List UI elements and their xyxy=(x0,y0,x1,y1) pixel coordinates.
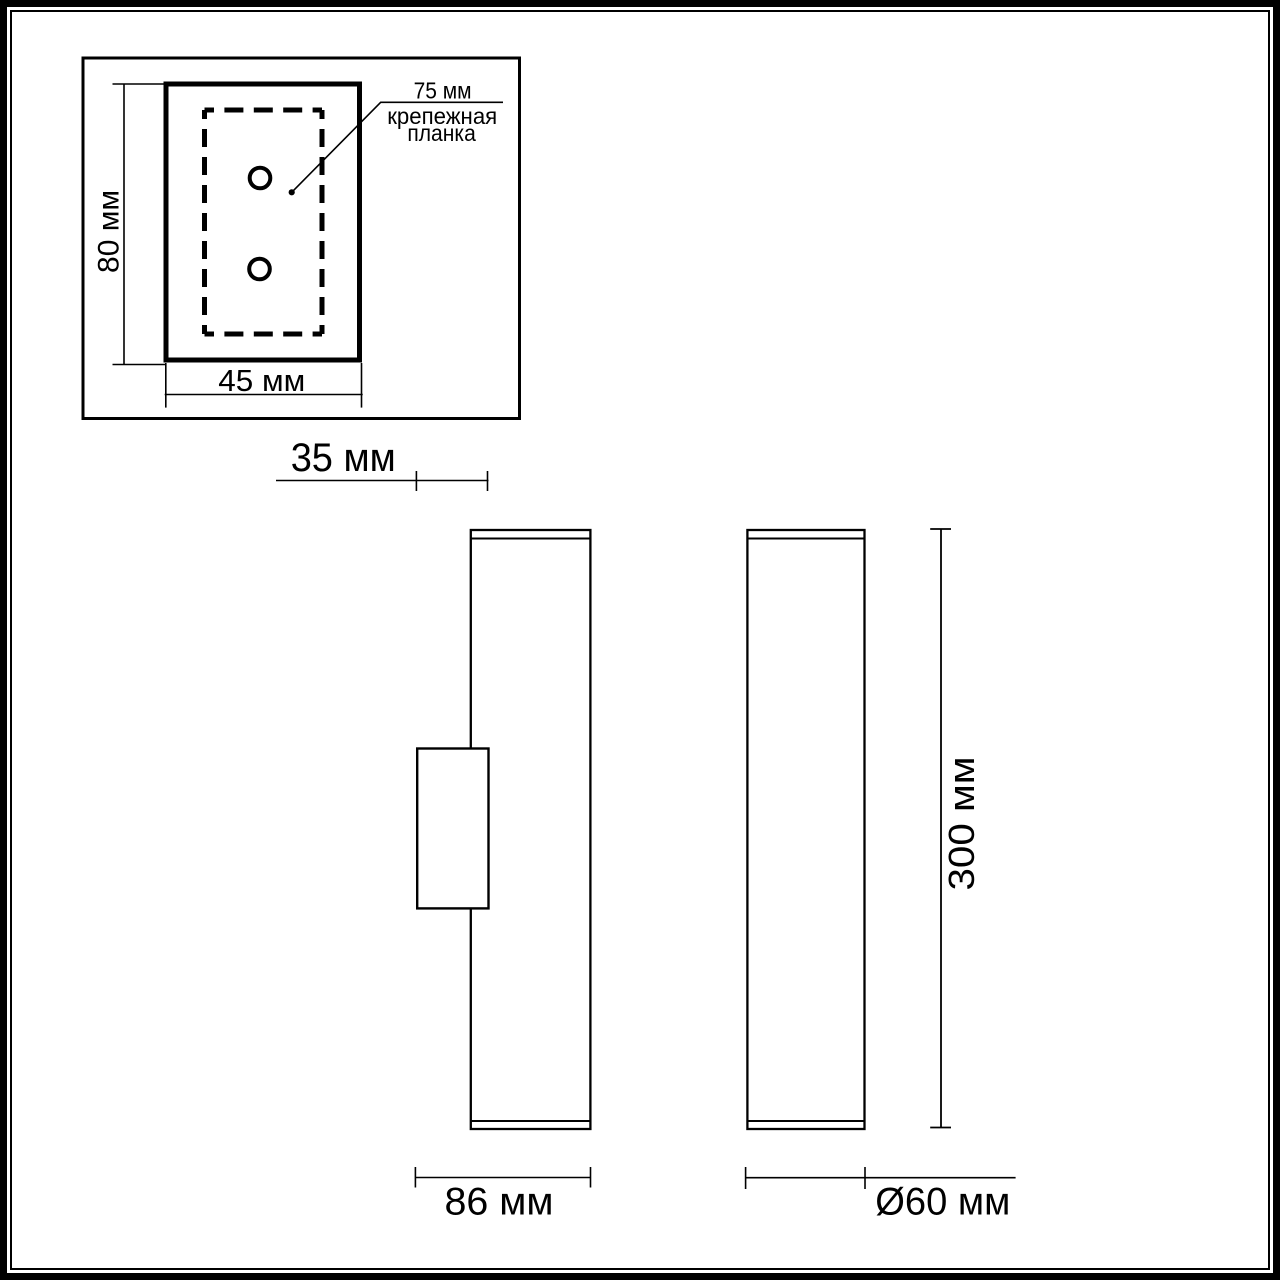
svg-text:86 мм: 86 мм xyxy=(445,1180,554,1224)
svg-text:300 мм: 300 мм xyxy=(941,757,982,891)
svg-text:Ø60 мм: Ø60 мм xyxy=(875,1180,1010,1224)
svg-text:45 мм: 45 мм xyxy=(218,365,305,398)
svg-text:планка: планка xyxy=(407,120,476,146)
svg-text:75 мм: 75 мм xyxy=(414,78,472,104)
svg-text:80 мм: 80 мм xyxy=(93,190,126,273)
svg-text:35 мм: 35 мм xyxy=(291,436,396,480)
